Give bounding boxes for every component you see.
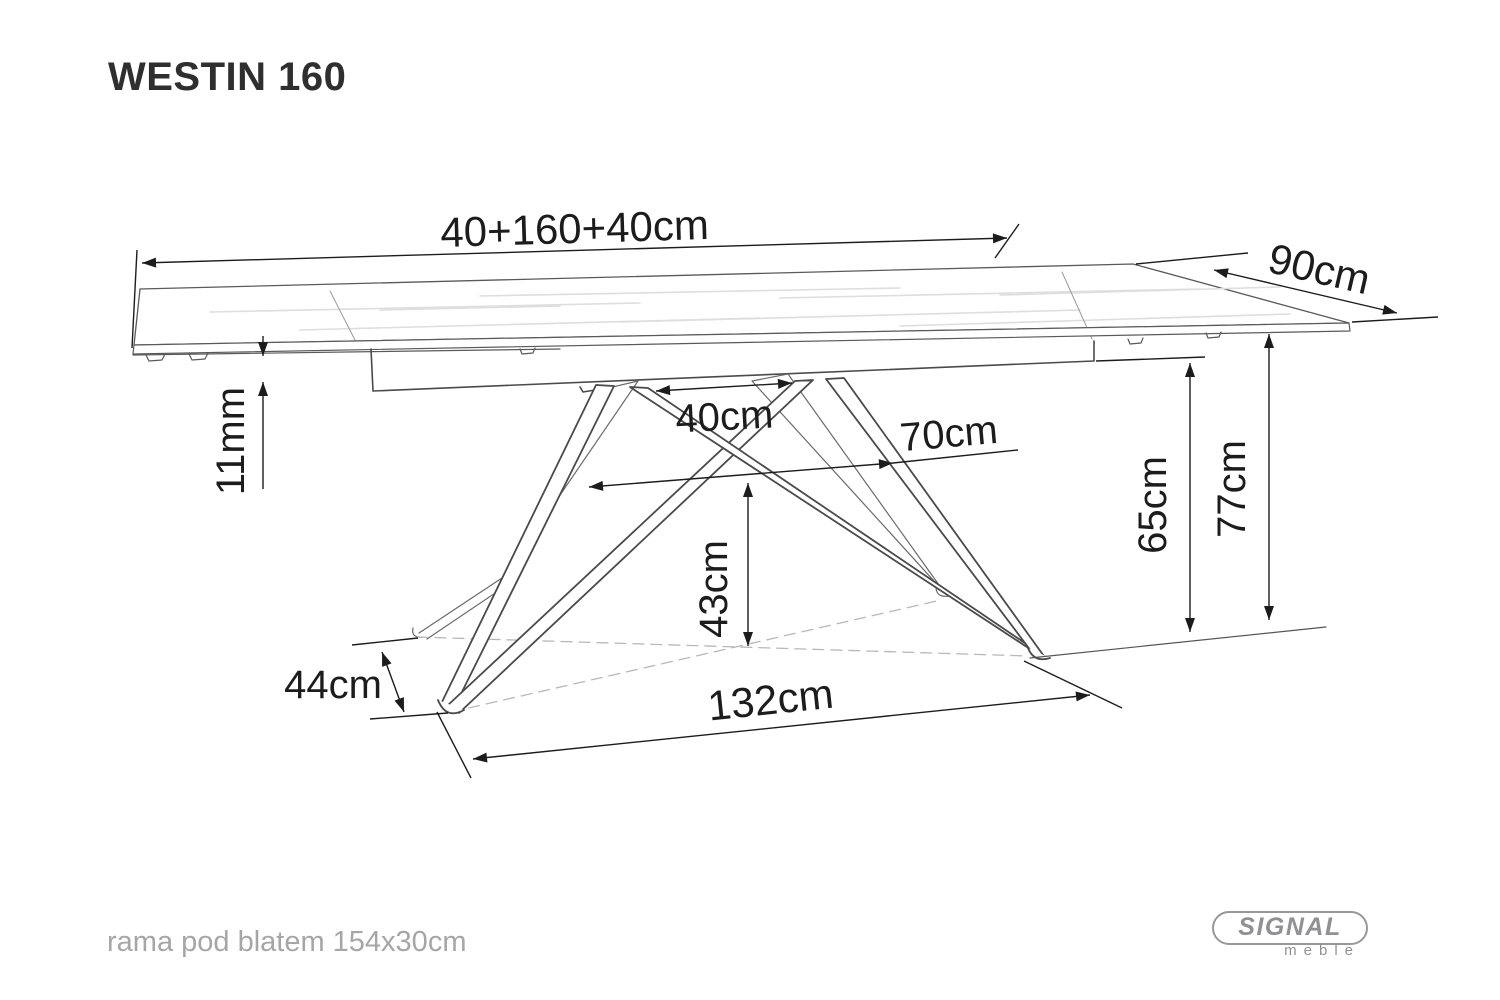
- dim-thickness-label: 11mm: [209, 387, 253, 495]
- leg-bar-outer-left: [441, 385, 614, 712]
- dimension-total-height: 77cm: [1210, 334, 1269, 620]
- diagram-canvas: 40+160+40cm 90cm 11mm 40cm: [0, 0, 1500, 1000]
- dim-foot-depth-label: 44cm: [284, 663, 382, 707]
- dimension-underside-clearance: 65cm: [1096, 357, 1205, 632]
- dimension-foot-depth: 44cm: [284, 638, 448, 719]
- dim-base-span-label: 132cm: [705, 670, 835, 730]
- signal-logo-text: SIGNAL: [1214, 913, 1366, 942]
- dim-top-spacing-label: 40cm: [674, 392, 774, 441]
- dim-mid-width-label: 70cm: [898, 408, 999, 460]
- page-title: WESTIN 160: [108, 55, 346, 100]
- dimension-base-span: 132cm: [437, 661, 1122, 778]
- diagram-page: 40+160+40cm 90cm 11mm 40cm: [0, 0, 1500, 1000]
- signal-logo: SIGNAL: [1212, 911, 1368, 945]
- dim-clearance-label: 65cm: [1131, 456, 1175, 554]
- dimension-brace-height: 43cm: [692, 483, 748, 646]
- dim-height-label: 77cm: [1210, 440, 1254, 538]
- frame-under-top: [371, 341, 1094, 392]
- floor-line: [1030, 627, 1326, 658]
- signal-logo-subtext: meble: [1212, 942, 1360, 959]
- dim-brace-height-label: 43cm: [692, 540, 736, 638]
- dim-depth-label: 90cm: [1264, 234, 1375, 303]
- frame-size-note: rama pod blatem 154x30cm: [107, 926, 466, 959]
- dimension-leg-top-spacing: 40cm: [656, 383, 792, 442]
- dim-total-length-label: 40+160+40cm: [440, 201, 710, 256]
- tabletop: [133, 264, 1350, 392]
- dimension-top-thickness: 11mm: [209, 336, 263, 495]
